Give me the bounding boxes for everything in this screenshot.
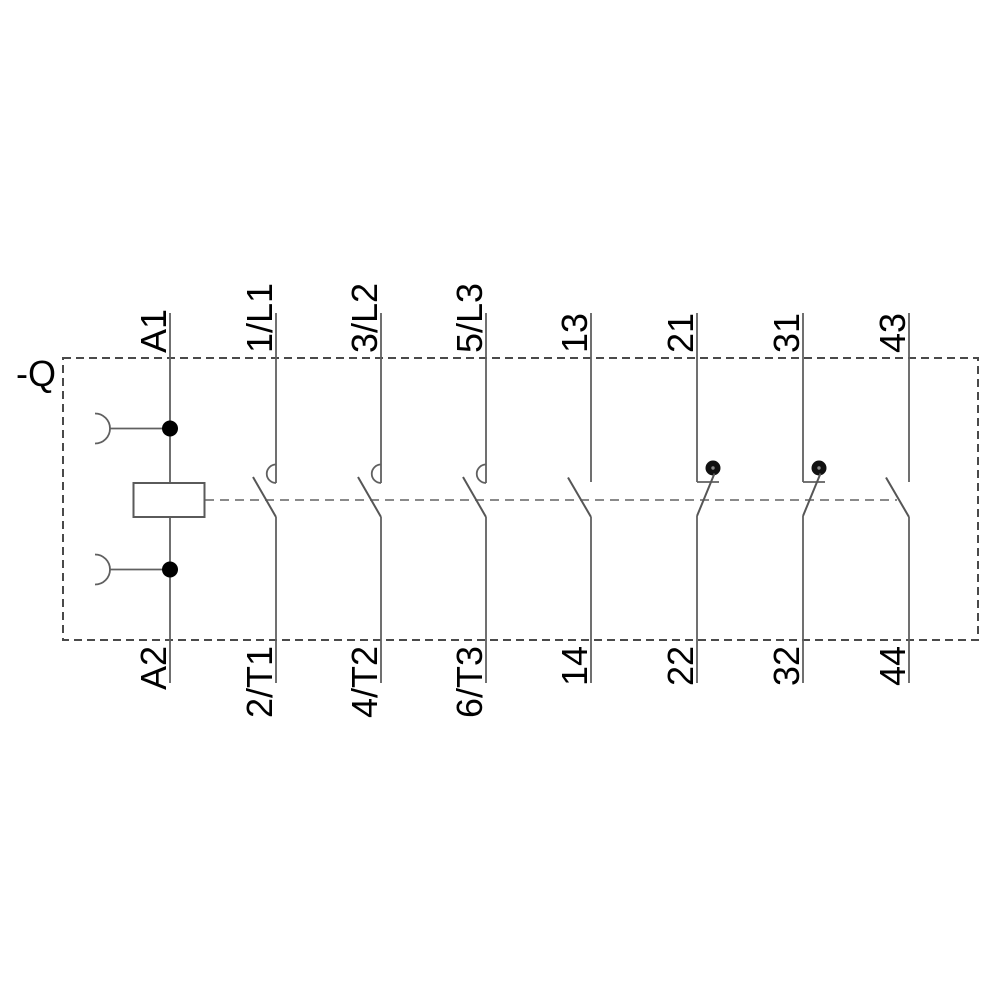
pole-aux-nc-21-22 <box>697 313 721 683</box>
terminal-label-14: 14 <box>554 646 595 686</box>
pole-main-3l2-4t2 <box>358 313 381 683</box>
terminal-label-3l2: 3/L2 <box>344 283 385 353</box>
pole-coil-a1-a2 <box>95 313 205 683</box>
pole-main-1l1-2t1 <box>253 313 276 683</box>
terminal-label-6t3: 6/T3 <box>449 646 490 718</box>
device-designation-label: -Q <box>16 353 56 394</box>
contact-blade <box>568 478 591 518</box>
fixed-contact-arc-icon <box>477 465 486 484</box>
terminal-label-a1: A1 <box>133 309 174 353</box>
contact-blade <box>886 478 909 518</box>
terminal-label-32: 32 <box>766 646 807 686</box>
fixed-contact-arc-icon <box>267 465 276 484</box>
terminal-label-43: 43 <box>872 313 913 353</box>
coil-clip-arc-lower-icon <box>95 555 110 585</box>
nc-driven-contact-dot-center <box>711 466 714 469</box>
terminal-label-13: 13 <box>554 313 595 353</box>
terminal-label-1l1: 1/L1 <box>239 283 280 353</box>
pole-aux-no-13-14 <box>568 313 591 683</box>
junction-dot-upper <box>162 421 178 437</box>
nc-driven-contact-dot-center <box>817 466 820 469</box>
coil-symbol <box>134 483 205 517</box>
fixed-contact-arc-icon <box>372 465 381 484</box>
contactor-schematic-canvas: -Q <box>0 0 1000 1000</box>
terminal-label-a2: A2 <box>133 646 174 690</box>
coil-clip-arc-upper-icon <box>95 414 110 444</box>
pole-main-5l3-6t3 <box>463 313 486 683</box>
pole-aux-no-43-44 <box>886 313 909 683</box>
contact-blade <box>697 474 715 517</box>
terminal-label-4t2: 4/T2 <box>344 646 385 718</box>
schematic-page: -Q <box>0 0 1000 1000</box>
contact-blade <box>803 474 821 517</box>
terminal-label-2t1: 2/T1 <box>239 646 280 718</box>
pole-aux-nc-31-32 <box>803 313 827 683</box>
terminal-label-22: 22 <box>660 646 701 686</box>
terminal-label-5l3: 5/L3 <box>449 283 490 353</box>
terminal-label-44: 44 <box>872 646 913 686</box>
junction-dot-lower <box>162 562 178 578</box>
terminal-label-21: 21 <box>660 313 701 353</box>
terminal-label-31: 31 <box>766 313 807 353</box>
